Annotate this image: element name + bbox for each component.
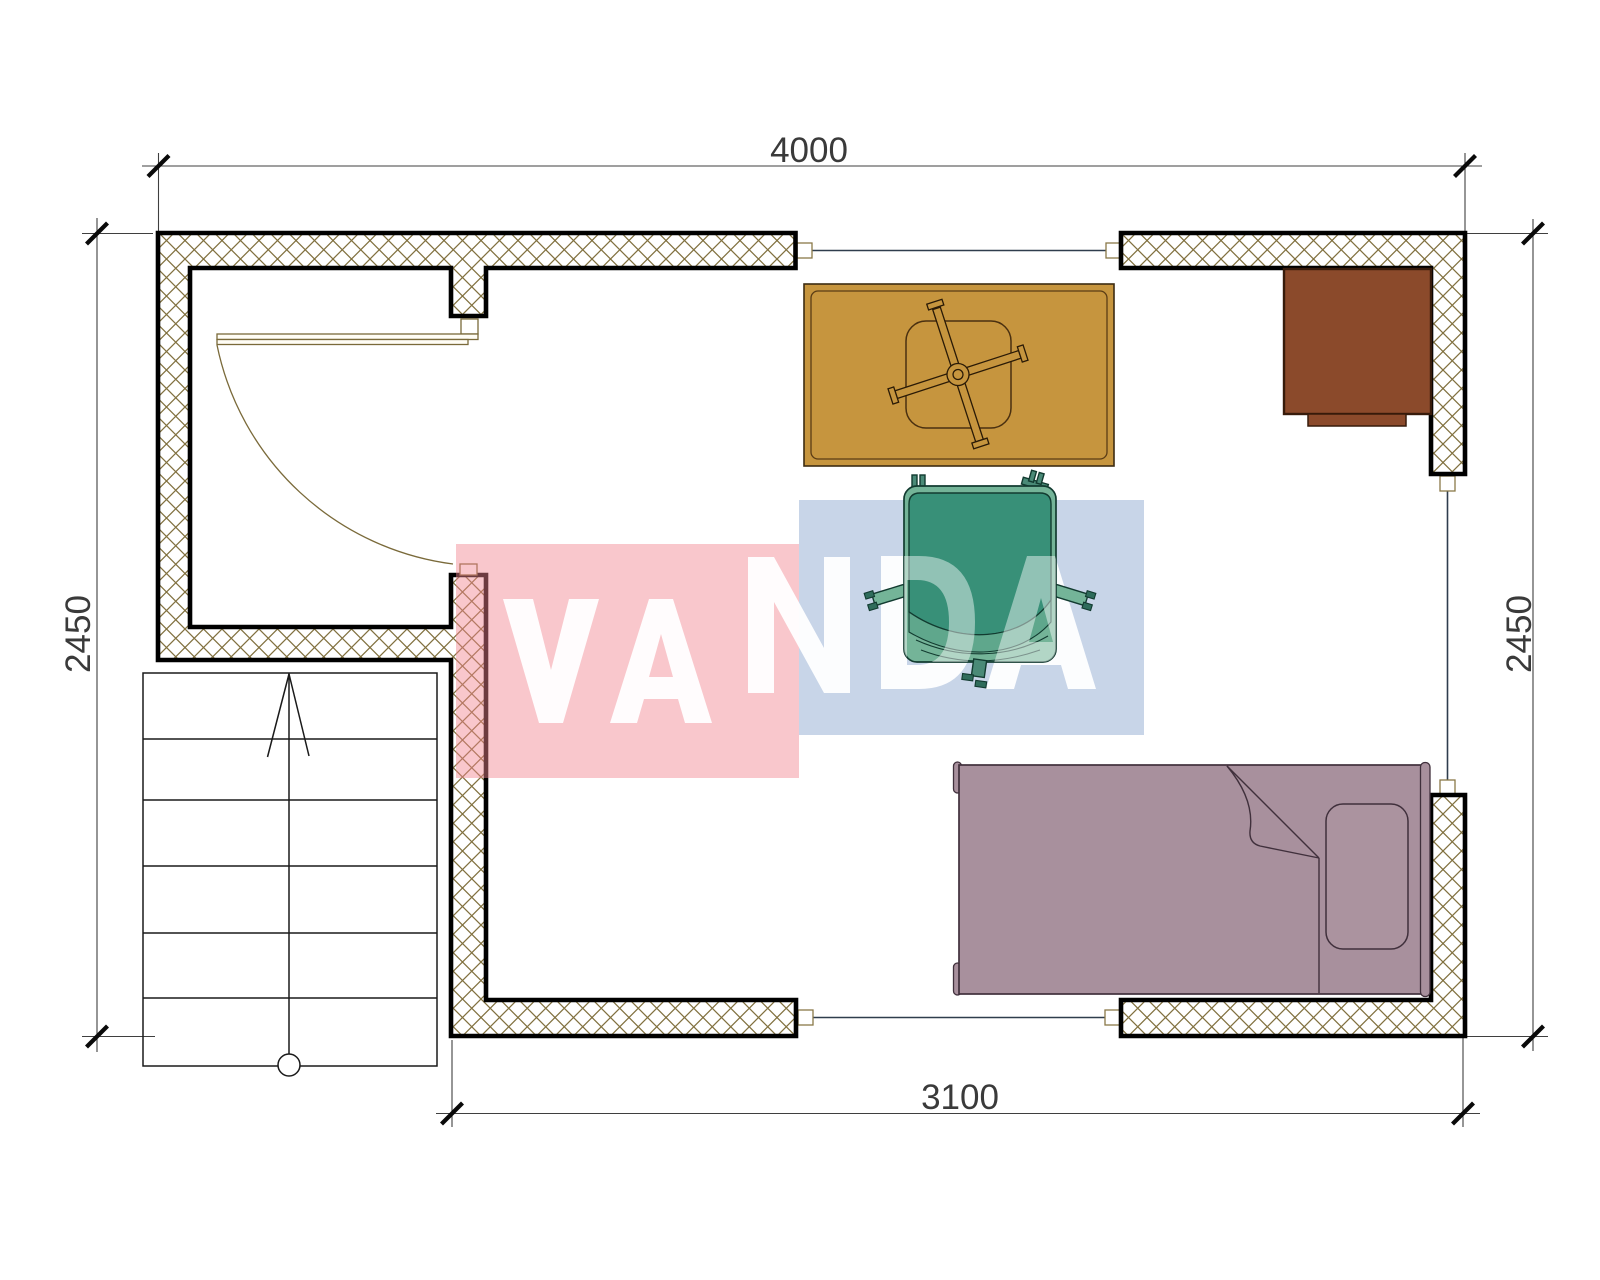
svg-text:4000: 4000 bbox=[770, 131, 848, 170]
svg-text:2450: 2450 bbox=[1500, 595, 1539, 673]
svg-text:3100: 3100 bbox=[921, 1078, 999, 1117]
svg-text:2450: 2450 bbox=[59, 595, 98, 673]
